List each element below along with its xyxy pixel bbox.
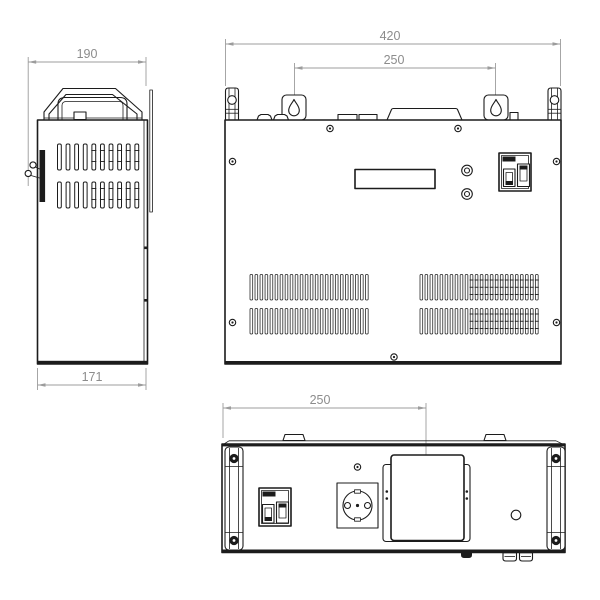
vent-slot [290,309,293,335]
vent-slot [260,309,263,335]
vent-slot [340,309,343,335]
screw [391,354,397,360]
vent-slot [135,144,139,170]
vent-slot [360,275,363,301]
vent-slot [280,309,283,335]
front-vent-grid-left-row2 [250,309,368,335]
cable-bush [461,553,472,559]
vent-slot [250,275,253,301]
vent-slot [450,309,453,335]
front-vent-grid-right-row1 [420,275,539,301]
vent-slot [305,309,308,335]
vent-slot [275,275,278,301]
rail-screw [229,536,238,545]
rail-screw [229,454,238,463]
drawing-canvas: 190 [0,0,600,600]
circuit-breaker-back [259,488,291,526]
vent-slot [360,309,363,335]
corner-bracket-left [226,88,239,120]
terminal-cover [383,455,470,542]
cable-gland-1 [503,553,517,561]
vent-slot [83,144,87,170]
vent-slot [270,275,273,301]
vent-slot [325,275,328,301]
vent-slot [250,309,253,335]
front-view: 420 250 [225,29,561,364]
screw [455,125,461,131]
vent-slot [460,275,463,301]
vent-slot [425,309,428,335]
vent-slot [109,182,113,208]
vent-slot [435,275,438,301]
screw [229,319,235,325]
vent-slot [305,275,308,301]
terminal-screw-1 [30,162,36,168]
vent-slot [280,275,283,301]
vent-slot [265,309,268,335]
vent-slot [465,309,468,335]
side-vent-grid-row2 [58,182,140,208]
dim-label-420: 420 [380,29,401,43]
breaker-label [503,157,516,162]
dim-label-190: 190 [77,47,98,61]
vent-slot [335,275,338,301]
vent-slot [435,309,438,335]
vent-slot [58,182,62,208]
vent-hole [511,510,521,520]
mounting-rail-left [225,447,243,550]
vent-slot [135,182,139,208]
keyhole-bracket-right [484,95,508,120]
vent-slot [75,144,79,170]
vent-slot [101,182,105,208]
vent-slot [430,309,433,335]
vent-slot [270,309,273,335]
socket-pin [356,504,359,507]
circuit-breaker-front [499,153,531,191]
dim-label-171: 171 [82,370,103,384]
vent-slot [440,309,443,335]
mounting-rail-right [547,447,565,550]
side-base-edge [38,361,148,364]
vent-slot [310,309,313,335]
screw [229,158,235,164]
cable-gland-2 [520,553,533,561]
vent-slot [255,275,258,301]
vent-slot [118,144,122,170]
power-socket [337,483,378,528]
vent-slot [420,309,423,335]
vent-slot [109,144,113,170]
back-top-band [222,444,565,447]
vent-slot [255,309,258,335]
vent-slot [325,309,328,335]
vent-slot [260,275,263,301]
vent-slot [126,144,130,170]
back-bottom-band [222,550,565,553]
side-vent-grid-row1 [58,144,140,170]
vent-slot [285,275,288,301]
side-view: 190 [25,47,152,390]
vent-slot [83,182,87,208]
vent-slot [465,275,468,301]
vent-slot [310,275,313,301]
bottom-fittings [461,553,533,562]
vent-slot [350,309,353,335]
vent-slot [75,182,79,208]
rail-screw [551,454,560,463]
vent-slot [320,309,323,335]
dimension-250-front: 250 [295,53,496,108]
dimension-171: 171 [38,368,147,390]
vent-slot [101,144,105,170]
vent-slot [265,275,268,301]
vent-slot [295,275,298,301]
vent-slot [330,309,333,335]
vent-slot [295,309,298,335]
vent-slot [92,144,96,170]
back-view: 250 [222,393,565,561]
vent-slot [365,309,368,335]
vent-slot [445,309,448,335]
vent-slot [460,309,463,335]
vent-slot [275,309,278,335]
vent-slot [430,275,433,301]
vent-slot [425,275,428,301]
vent-slot [335,309,338,335]
vent-slot [320,275,323,301]
carrying-handle [44,89,142,121]
vent-slot [455,275,458,301]
vent-slot [340,275,343,301]
screw [553,319,559,325]
front-vent-grid-right-row2 [420,309,539,335]
front-base-edge [225,361,561,364]
vent-slot [315,309,318,335]
vent-slot [285,309,288,335]
wall-bracket-edge [150,90,153,212]
vent-slot [420,275,423,301]
vent-slot [350,275,353,301]
terminal-cover-lid [391,455,464,541]
vent-slot [365,275,368,301]
dim-label-250-front: 250 [384,53,405,67]
vent-slot [126,182,130,208]
dim-label-250-back: 250 [310,393,331,407]
indicator-button-2 [462,189,473,200]
vent-slot [315,275,318,301]
rail-screw [551,536,560,545]
indicator-button-1 [462,165,473,176]
vent-slot [330,275,333,301]
vent-slot [66,144,70,170]
handle-latch [74,112,86,120]
handle-top-profile [387,109,462,121]
vent-slot [118,182,122,208]
vent-slot [92,182,96,208]
vent-slot [300,309,303,335]
vent-slot [300,275,303,301]
vent-slot [355,309,358,335]
vent-slot [345,309,348,335]
vent-slot [66,182,70,208]
terminal-screw-2 [25,170,31,176]
technical-drawing-sheet: 190 [0,0,600,600]
screw [553,158,559,164]
screw [354,464,360,470]
vent-slot [290,275,293,301]
corner-bracket-right [548,88,561,120]
vent-slot [445,275,448,301]
vent-slot [345,275,348,301]
vent-slot [450,275,453,301]
vent-slot [455,309,458,335]
lcd-display [355,170,435,189]
front-vent-grid-left-row1 [250,275,368,301]
vent-slot [440,275,443,301]
vent-slot [58,144,62,170]
screw [327,125,333,131]
vent-slot [355,275,358,301]
breaker-label [263,492,276,497]
